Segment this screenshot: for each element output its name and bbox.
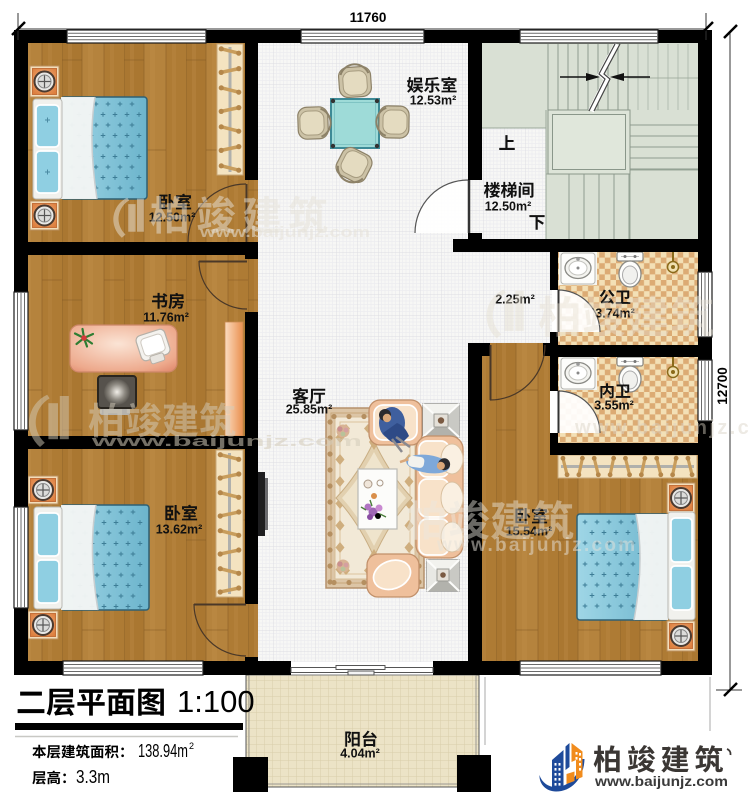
svg-text:4.04m²: 4.04m² xyxy=(340,747,380,761)
svg-text:3.3m: 3.3m xyxy=(76,767,110,787)
svg-text:2: 2 xyxy=(189,741,194,751)
svg-text:3.55m²: 3.55m² xyxy=(594,399,634,413)
svg-text:www.baijunjz.com: www.baijunjz.com xyxy=(436,535,637,556)
svg-text:138.94m: 138.94m xyxy=(138,741,188,761)
svg-text:www.baijunjz.com: www.baijunjz.com xyxy=(199,224,370,241)
svg-text:25.85m²: 25.85m² xyxy=(286,403,333,417)
svg-text:www.baijunjz.com: www.baijunjz.com xyxy=(90,433,362,450)
svg-text:1:100: 1:100 xyxy=(177,684,255,719)
svg-text:12700: 12700 xyxy=(715,367,730,405)
svg-text:11.76m²: 11.76m² xyxy=(143,311,189,325)
svg-text:www.baijunjz.com: www.baijunjz.com xyxy=(574,417,750,439)
svg-text:12.53m²: 12.53m² xyxy=(410,94,457,108)
svg-text:www.baijunjz.com: www.baijunjz.com xyxy=(594,774,728,789)
svg-text:12.50m²: 12.50m² xyxy=(485,200,532,214)
svg-text:11760: 11760 xyxy=(350,10,387,25)
svg-text:13.62m²: 13.62m² xyxy=(156,523,203,537)
